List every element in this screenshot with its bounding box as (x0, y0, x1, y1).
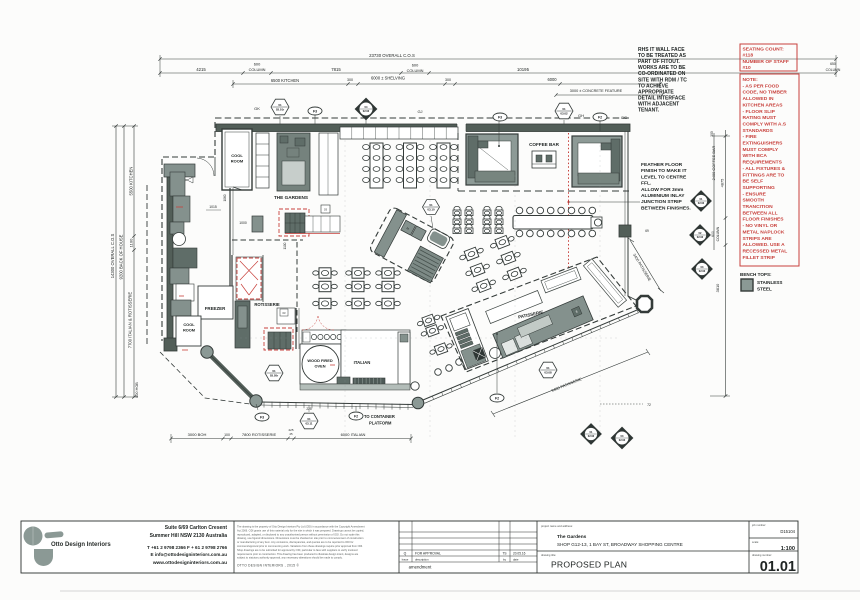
svg-text:23730 OVERALL C.O.S: 23730 OVERALL C.O.S (369, 53, 415, 58)
svg-text:JUNCTION STRIP: JUNCTION STRIP (641, 199, 682, 205)
svg-text:drawing, use figured dimension: drawing, use figured dimensions. Dimensi… (237, 536, 364, 540)
svg-text:300: 300 (347, 78, 353, 82)
svg-text:D15104: D15104 (780, 529, 795, 534)
svg-text:02.02: 02.02 (698, 201, 705, 205)
svg-text:GH: GH (578, 113, 584, 118)
svg-text:LEVEL TO CENTRE: LEVEL TO CENTRE (641, 174, 687, 180)
svg-text:REQUIREMENTS: REQUIREMENTS (743, 160, 783, 166)
svg-text:100: 100 (224, 433, 230, 437)
svg-text:COFFEE BAR: COFFEE BAR (529, 142, 560, 147)
svg-text:7700 ITALIAN & ROTISSERIE: 7700 ITALIAN & ROTISSERIE (128, 292, 133, 349)
svg-text:MUST COMPLY: MUST COMPLY (743, 147, 779, 153)
svg-text:T +61 2 9798 2366 F + 61 2 97: T +61 2 9798 2366 F + 61 2 9798 2766 (147, 545, 227, 550)
svg-text:description: description (415, 558, 429, 562)
svg-text:BETWEEN ALL: BETWEEN ALL (743, 210, 778, 216)
svg-text:Shop drawings are to be submit: Shop drawings are to be submitted for ap… (237, 548, 358, 552)
svg-text:ALUMINIUM INLAY: ALUMINIUM INLAY (641, 193, 685, 199)
svg-text:scale:: scale: (752, 540, 759, 544)
svg-text:GJ: GJ (417, 109, 422, 114)
svg-text:F2: F2 (495, 396, 499, 400)
svg-text:14300 OVERALL C.O.S: 14300 OVERALL C.O.S (110, 234, 115, 279)
svg-text:6000: 6000 (547, 77, 557, 82)
svg-text:GK: GK (254, 106, 260, 111)
svg-text:69: 69 (645, 229, 649, 233)
svg-text:01: 01 (546, 366, 550, 370)
svg-text:ROOM: ROOM (183, 328, 195, 333)
svg-text:PLATFORM: PLATFORM (369, 421, 392, 426)
svg-text:E info@ottodesigninteriors.com: E info@ottodesigninteriors.com.au (151, 552, 228, 557)
svg-text:COOL: COOL (231, 153, 243, 158)
svg-text:BE SELF: BE SELF (743, 179, 764, 185)
svg-text:6000 ITALIAN: 6000 ITALIAN (341, 432, 366, 437)
svg-text:03.10: 03.10 (427, 207, 435, 211)
svg-text:COLUMN: COLUMN (716, 226, 720, 241)
svg-text:72: 72 (647, 403, 651, 407)
svg-text:02.02: 02.02 (619, 438, 626, 442)
svg-text:10195: 10195 (517, 67, 530, 72)
svg-text:3000 BOH: 3000 BOH (188, 432, 207, 437)
svg-text:COLUMN: COLUMN (249, 67, 266, 72)
svg-text:- ENSURE: - ENSURE (743, 191, 767, 197)
svg-text:BETWEEN FINISHES.: BETWEEN FINISHES. (641, 205, 691, 211)
svg-text:STANDARDS: STANDARDS (743, 128, 774, 134)
svg-text:4875: 4875 (720, 179, 725, 188)
svg-text:ALLOWED IN: ALLOWED IN (743, 96, 774, 102)
svg-text:- ALL FIXTURES &: - ALL FIXTURES & (743, 166, 786, 172)
svg-text:job number:: job number: (751, 523, 766, 527)
svg-text:7815: 7815 (331, 67, 341, 72)
svg-text:FITTINGS ARE TO: FITTINGS ARE TO (743, 172, 785, 178)
svg-text:400 HOB: 400 HOB (135, 382, 139, 398)
svg-text:OVEN: OVEN (314, 364, 325, 369)
svg-text:SMOOTH: SMOOTH (743, 198, 765, 204)
svg-text:STEEL: STEEL (757, 287, 772, 292)
svg-text:Suite 6/69 Carlton Cresent: Suite 6/69 Carlton Cresent (165, 525, 228, 531)
svg-text:7800 ROTISSERIE: 7800 ROTISSERIE (242, 432, 277, 437)
svg-text:01: 01 (278, 103, 282, 107)
svg-text:date: date (513, 558, 519, 562)
svg-text:FEATHER FLOOR: FEATHER FLOOR (641, 162, 683, 168)
svg-text:3000 ± CONCRETE FEATURE: 3000 ± CONCRETE FEATURE (570, 89, 623, 93)
svg-text:1000: 1000 (239, 221, 247, 225)
svg-text:03.11: 03.11 (305, 421, 312, 425)
svg-text:PROPOSED PLAN: PROPOSED PLAN (551, 560, 627, 570)
svg-text:SHOP G12-13, 1 BAY ST, BROADWA: SHOP G12-13, 1 BAY ST, BROADWAY SHOPPING… (557, 542, 683, 547)
svg-text:1015: 1015 (209, 205, 217, 209)
svg-text:- AS PER FOOD: - AS PER FOOD (743, 83, 780, 89)
svg-text:03.08: 03.08 (544, 370, 552, 374)
svg-text:ALLOW FOR 3mm: ALLOW FOR 3mm (641, 187, 684, 193)
svg-text:WOOD FIRED: WOOD FIRED (307, 358, 332, 363)
svg-text:FLOOR FINISHES: FLOOR FINISHES (743, 217, 785, 223)
svg-text:TO CONTAINER: TO CONTAINER (364, 414, 395, 419)
svg-text:TRANCITION: TRANCITION (743, 204, 774, 210)
svg-text:02.02: 02.02 (699, 269, 706, 273)
svg-text:- FLOOR SLIP: - FLOOR SLIP (743, 109, 776, 115)
svg-text:9200 BACK OF HOUSE: 9200 BACK OF HOUSE (119, 234, 124, 279)
svg-text:300: 300 (445, 78, 451, 82)
svg-text:Otto Design Interiors: Otto Design Interiors (51, 542, 111, 548)
svg-text:www.ottodesigninteriors.com.au: www.ottodesigninteriors.com.au (152, 560, 227, 566)
svg-text:F3: F3 (498, 115, 502, 119)
svg-text:drawing number:: drawing number: (752, 553, 772, 557)
svg-text:The drawing is the property of: The drawing is the property of Otto Desi… (237, 525, 365, 529)
svg-text:600: 600 (711, 231, 715, 237)
svg-text:CODE, NO TIMBER: CODE, NO TIMBER (743, 90, 788, 96)
svg-text:3810: 3810 (715, 283, 720, 292)
svg-text:01.01: 01.01 (760, 559, 796, 575)
svg-text:F2: F2 (598, 115, 602, 119)
svg-text:TENANT.: TENANT. (638, 108, 660, 114)
svg-text:RECESSED METAL: RECESSED METAL (743, 248, 788, 254)
svg-text:ALLOWED. USE A: ALLOWED. USE A (743, 242, 786, 248)
svg-text:drawing title:: drawing title: (541, 553, 556, 557)
svg-text:02.02: 02.02 (697, 235, 704, 239)
svg-text:600: 600 (254, 62, 261, 67)
svg-text:4215: 4215 (196, 67, 206, 72)
svg-text:STAINLESS: STAINLESS (757, 280, 782, 285)
svg-text:25: 25 (289, 432, 293, 436)
svg-text:FINISH TO MAKE IT: FINISH TO MAKE IT (641, 168, 687, 174)
svg-text:project name and address:: project name and address: (541, 524, 573, 528)
svg-text:NUMBER OF STAFF: NUMBER OF STAFF (743, 59, 789, 65)
svg-text:ROTISSERIE: ROTISSERIE (254, 302, 280, 307)
svg-text:03.01r: 03.01r (276, 107, 285, 111)
svg-text:01: 01 (307, 417, 311, 421)
svg-text:ITALIAN: ITALIAN (354, 360, 371, 365)
svg-text:Issue: Issue (402, 558, 409, 562)
svg-text:1100: 1100 (283, 242, 287, 249)
svg-text:20.05.16: 20.05.16 (513, 552, 526, 556)
svg-text:COLUMN: COLUMN (407, 68, 424, 73)
svg-text:SEATING COUNT:: SEATING COUNT: (743, 47, 785, 53)
svg-text:or manufacturing of any item.: or manufacturing of any item. Any omissi… (237, 540, 354, 544)
svg-text:ROOM: ROOM (231, 159, 244, 164)
svg-text:KITCHEN AREAS: KITCHEN AREAS (743, 102, 784, 108)
svg-text:TS: TS (502, 552, 506, 556)
svg-text:COLUMN: COLUMN (826, 68, 841, 72)
svg-text:600: 600 (412, 63, 419, 68)
svg-text:OTTO DESIGN INTERIORS , 2015: OTTO DESIGN INTERIORS , 2015 © (237, 564, 299, 568)
svg-text:THE GARDENS: THE GARDENS (274, 195, 308, 200)
svg-text:FFL.: FFL. (641, 181, 652, 187)
svg-text:amendment: amendment (409, 565, 432, 570)
svg-text:- FIRE: - FIRE (743, 134, 758, 140)
svg-text:COMPLY WITH A.S: COMPLY WITH A.S (743, 121, 787, 127)
svg-text:Act 2006. ODI grants use of th: Act 2006. ODI grants use of this materia… (237, 528, 364, 532)
svg-text:GG: GG (621, 115, 627, 120)
svg-text:The Gardens: The Gardens (557, 534, 587, 540)
svg-text:1060: 1060 (223, 194, 227, 201)
svg-text:subject to statutory authority: subject to statutory authority approval,… (237, 556, 343, 560)
svg-text:EXTINGUISHERS: EXTINGUISHERS (743, 141, 784, 147)
svg-text:SUPPORTING: SUPPORTING (743, 185, 776, 191)
svg-text:#118: #118 (743, 53, 754, 59)
svg-text:WITH BCA: WITH BCA (743, 153, 768, 159)
svg-text:Q: Q (404, 552, 407, 556)
svg-text:650: 650 (830, 62, 836, 66)
svg-text:Summer Hill NSW 2130 Australia: Summer Hill NSW 2130 Australia (150, 533, 228, 539)
svg-text:COOL: COOL (183, 322, 195, 327)
svg-text:03.05r: 03.05r (270, 373, 279, 377)
svg-text:comment/approval prior to comm: comment/approval prior to commencing wor… (237, 544, 363, 548)
svg-text:6000 ± SHELVING: 6000 ± SHELVING (371, 76, 405, 81)
svg-text:F2: F2 (354, 414, 358, 418)
svg-text:NOTE:: NOTE: (743, 77, 759, 83)
svg-text:5500 KITCHEN: 5500 KITCHEN (129, 167, 134, 196)
svg-text:2400 COFFEE BAR: 2400 COFFEE BAR (711, 146, 716, 181)
svg-text:6500 KITCHEN: 6500 KITCHEN (271, 78, 299, 83)
svg-text:FREEZER: FREEZER (205, 306, 226, 311)
svg-text:FOR APPROVAL: FOR APPROVAL (415, 552, 441, 556)
svg-text:FILLET STRIP: FILLET STRIP (743, 255, 776, 261)
svg-text:BENCH TOPS:: BENCH TOPS: (740, 272, 772, 277)
svg-text:02.02: 02.02 (588, 434, 595, 438)
svg-text:STRIPS ARE: STRIPS ARE (743, 236, 773, 242)
svg-text:- NO VINYL OR: - NO VINYL OR (743, 223, 778, 229)
svg-text:01: 01 (562, 107, 566, 111)
svg-text:#10: #10 (743, 65, 751, 71)
svg-text:F3: F3 (313, 109, 317, 113)
svg-text:F3: F3 (260, 415, 264, 419)
svg-text:reproduced, adapted, or disclo: reproduced, adapted, or disclosed to any… (237, 532, 360, 536)
svg-text:02.02: 02.02 (363, 109, 370, 113)
svg-text:03.02: 03.02 (560, 111, 568, 115)
svg-text:01: 01 (272, 369, 276, 373)
svg-text:requirements prior to construc: requirements prior to construction. This… (237, 552, 359, 556)
svg-text:300: 300 (710, 131, 714, 137)
svg-text:METAL NAPLOCK: METAL NAPLOCK (743, 229, 785, 235)
svg-text:1100: 1100 (129, 238, 134, 247)
svg-text:RATING MUST: RATING MUST (743, 115, 777, 121)
